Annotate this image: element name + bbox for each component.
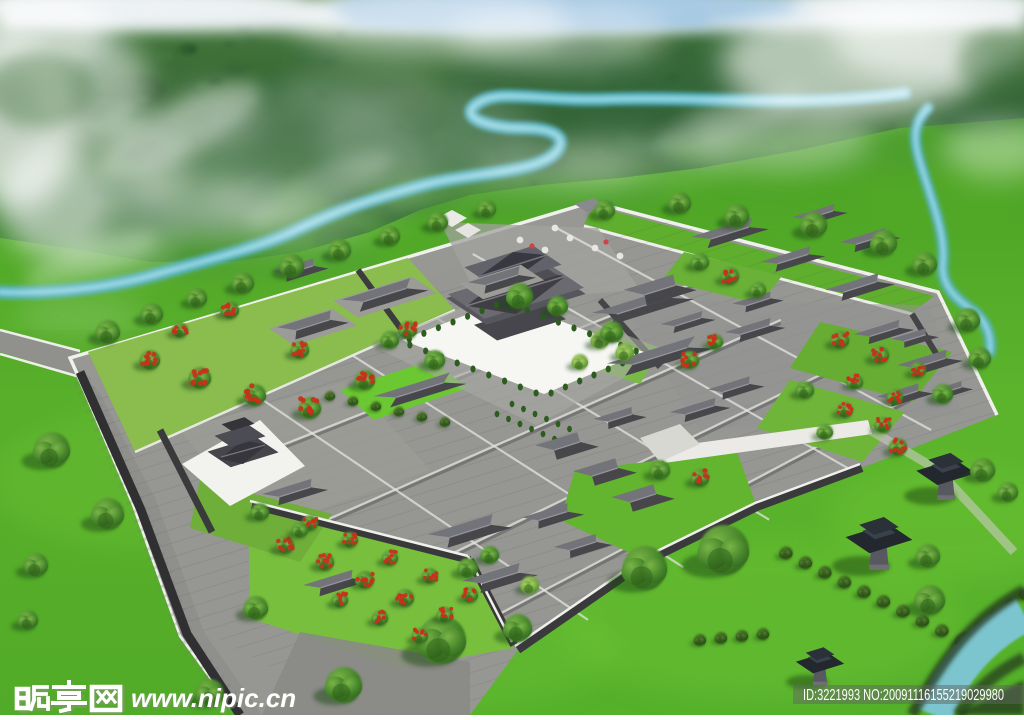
svg-text:www.nipic.cn: www.nipic.cn (131, 683, 296, 713)
svg-text:ID:3221993 NO:2009111615521902: ID:3221993 NO:20091116155219029980 (803, 687, 1004, 704)
